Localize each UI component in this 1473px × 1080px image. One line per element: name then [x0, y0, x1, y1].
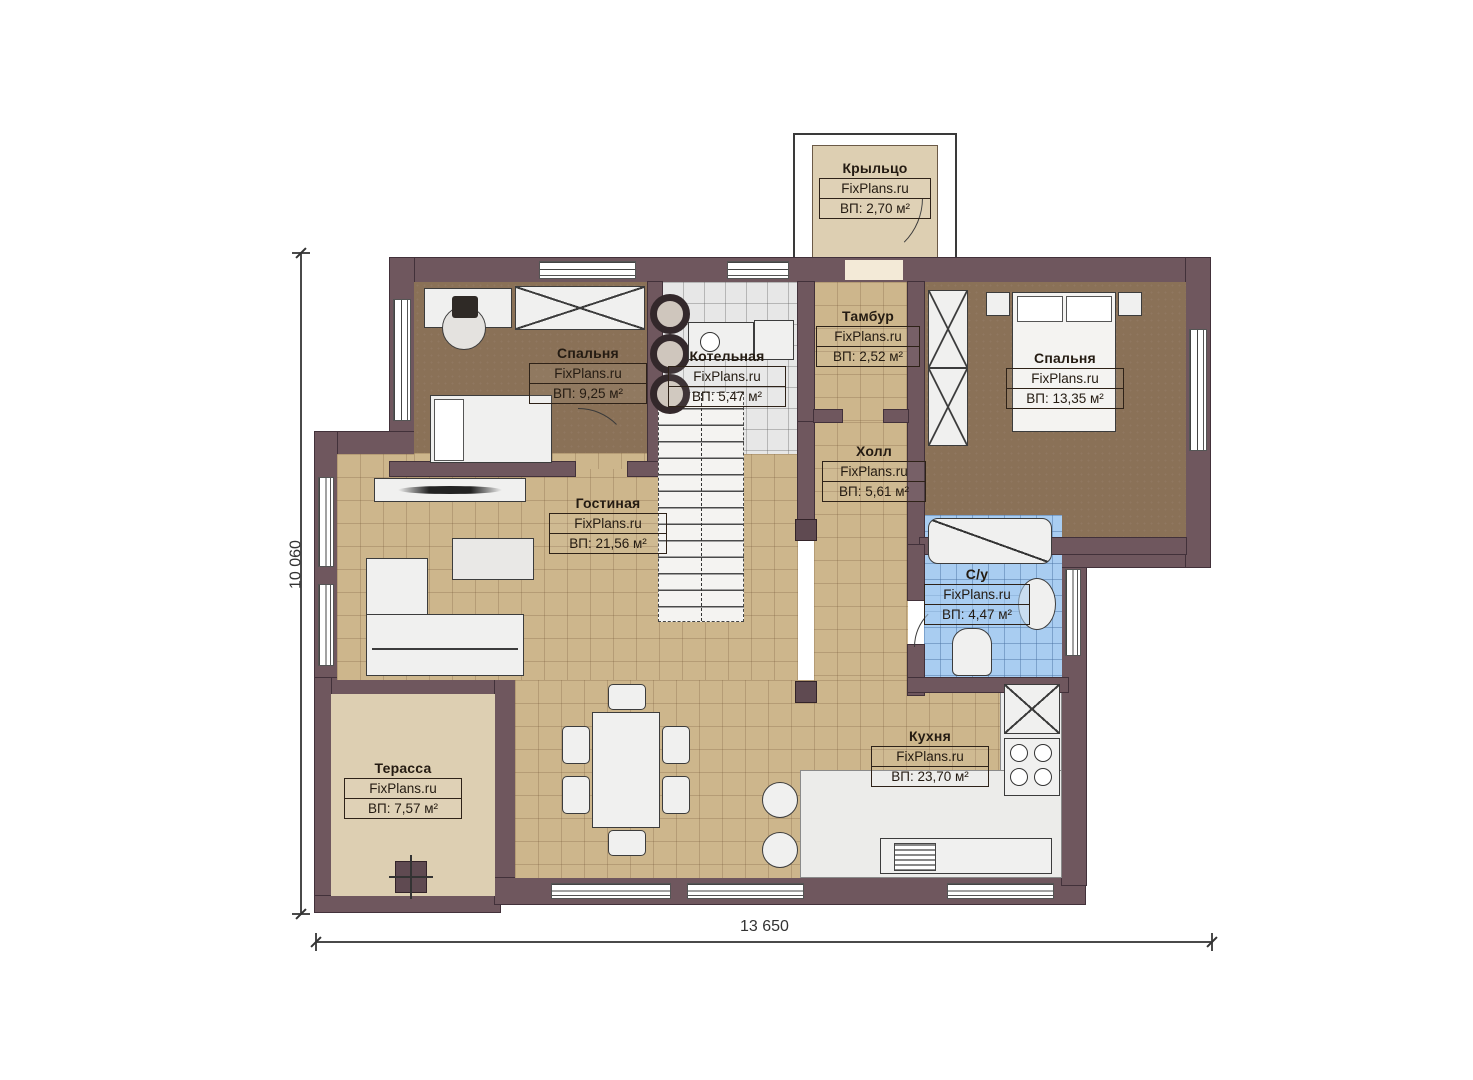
room-site: FixPlans.ru [529, 363, 647, 384]
desk-lamp [452, 296, 478, 318]
pillow-right [1066, 296, 1112, 322]
window-living-left-2 [319, 585, 333, 665]
window-top-1 [540, 262, 635, 278]
room-site: FixPlans.ru [344, 778, 462, 799]
room-label-kitchen: Кухня FixPlans.ru ВП: 23,70 м² [871, 728, 989, 787]
wall-kitchen-left [495, 678, 515, 904]
wall-tambour-hall-b [884, 410, 908, 422]
room-area: ВП: 5,47 м² [668, 387, 786, 407]
wall-center-mid [798, 422, 814, 522]
dimension-line-horizontal [315, 941, 1212, 943]
dining-table [592, 712, 660, 828]
room-name: Терасса [344, 760, 462, 776]
room-area: ВП: 7,57 м² [344, 799, 462, 819]
pillow-left [1017, 296, 1063, 322]
wardrobe-bedroom1 [515, 286, 645, 330]
wall-terrace-top [315, 678, 515, 694]
room-site: FixPlans.ru [816, 326, 920, 347]
bathtub [928, 518, 1052, 564]
stove-burner [1034, 744, 1052, 762]
dining-chair-bottom [608, 830, 646, 856]
wall-terrace-bottom [315, 896, 500, 912]
nightstand-left [986, 292, 1010, 316]
dining-chair-right-2 [662, 776, 690, 814]
dining-chair-left-2 [562, 776, 590, 814]
coffee-table [452, 538, 534, 580]
room-name: Кухня [871, 728, 989, 744]
dining-chair-right-1 [662, 726, 690, 764]
room-label-bathroom: С/у FixPlans.ru ВП: 4,47 м² [924, 566, 1030, 625]
room-label-terrace: Терасса FixPlans.ru ВП: 7,57 м² [344, 760, 462, 819]
room-name: Крыльцо [819, 160, 931, 176]
room-area: ВП: 2,52 м² [816, 347, 920, 367]
wall-bedroom1-living-b [628, 462, 662, 476]
wardrobe-bedroom2-a [928, 290, 968, 368]
window-top-2 [728, 262, 788, 278]
sofa-main [366, 614, 524, 676]
nightstand-right [1118, 292, 1142, 316]
wall-top [390, 258, 1210, 282]
wall-bedroom1-living-a [390, 462, 575, 476]
room-area: ВП: 23,70 м² [871, 767, 989, 787]
room-area: ВП: 9,25 м² [529, 384, 647, 404]
bar-stool-2 [762, 832, 798, 868]
window-bottom-3 [948, 884, 1053, 898]
stove-burner [1034, 768, 1052, 786]
room-area: ВП: 13,35 м² [1006, 389, 1124, 409]
room-label-tambour: Тамбур FixPlans.ru ВП: 2,52 м² [816, 308, 920, 367]
room-name: С/у [924, 566, 1030, 582]
room-name: Холл [822, 443, 926, 459]
wall-terrace-left [315, 678, 331, 912]
room-site: FixPlans.ru [1006, 368, 1124, 389]
room-site: FixPlans.ru [822, 461, 926, 482]
tv-screen [398, 486, 502, 494]
kitchen-sink [1004, 684, 1060, 734]
floor-plan-canvas: 10 060 13 650 [0, 0, 1473, 1080]
window-living-left-1 [319, 478, 333, 566]
window-bedroom1-left [394, 300, 410, 420]
wall-bath-left-a [908, 545, 924, 600]
room-name: Спальня [1006, 350, 1124, 366]
room-name: Гостиная [549, 495, 667, 511]
room-label-bedroom2: Спальня FixPlans.ru ВП: 13,35 м² [1006, 350, 1124, 409]
boiler-unit-1 [650, 294, 690, 334]
room-site: FixPlans.ru [924, 584, 1030, 605]
dining-chair-top [608, 684, 646, 710]
room-site: FixPlans.ru [668, 366, 786, 387]
room-name: Спальня [529, 345, 647, 361]
staircase [658, 392, 744, 622]
room-site: FixPlans.ru [549, 513, 667, 534]
room-name: Котельная [668, 348, 786, 364]
sofa-seam [372, 648, 518, 650]
room-area: ВП: 4,47 м² [924, 605, 1030, 625]
window-bedroom2-right [1190, 330, 1206, 450]
room-label-bedroom1: Спальня FixPlans.ru ВП: 9,25 м² [529, 345, 647, 404]
room-label-boiler: Котельная FixPlans.ru ВП: 5,47 м² [668, 348, 786, 407]
wall-tambour-hall-a [814, 410, 842, 422]
terrace-column-axis-v [410, 855, 412, 899]
room-site: FixPlans.ru [819, 178, 931, 199]
window-bath-right [1066, 570, 1080, 655]
room-label-living: Гостиная FixPlans.ru ВП: 21,56 м² [549, 495, 667, 554]
column-center [796, 520, 816, 540]
room-site: FixPlans.ru [871, 746, 989, 767]
window-bottom-2 [688, 884, 803, 898]
wall-center-upper [798, 282, 814, 422]
window-bottom-1 [552, 884, 670, 898]
room-area: ВП: 2,70 м² [819, 199, 931, 219]
room-label-porch: Крыльцо FixPlans.ru ВП: 2,70 м² [819, 160, 931, 219]
dining-chair-left-1 [562, 726, 590, 764]
wardrobe-bedroom2-b [928, 368, 968, 446]
entry-door-opening [845, 260, 903, 280]
room-area: ВП: 5,61 м² [822, 482, 926, 502]
bar-stool-1 [762, 782, 798, 818]
column-kitchen [796, 682, 816, 702]
dishwasher [894, 843, 936, 871]
room-label-hall: Холл FixPlans.ru ВП: 5,61 м² [822, 443, 926, 502]
stove-burner [1010, 744, 1028, 762]
room-name: Тамбур [816, 308, 920, 324]
dimension-height-label: 10 060 [287, 540, 305, 589]
stove-burner [1010, 768, 1028, 786]
room-area: ВП: 21,56 м² [549, 534, 667, 554]
dimension-width-label: 13 650 [740, 918, 789, 936]
bed-pillow [434, 399, 464, 461]
